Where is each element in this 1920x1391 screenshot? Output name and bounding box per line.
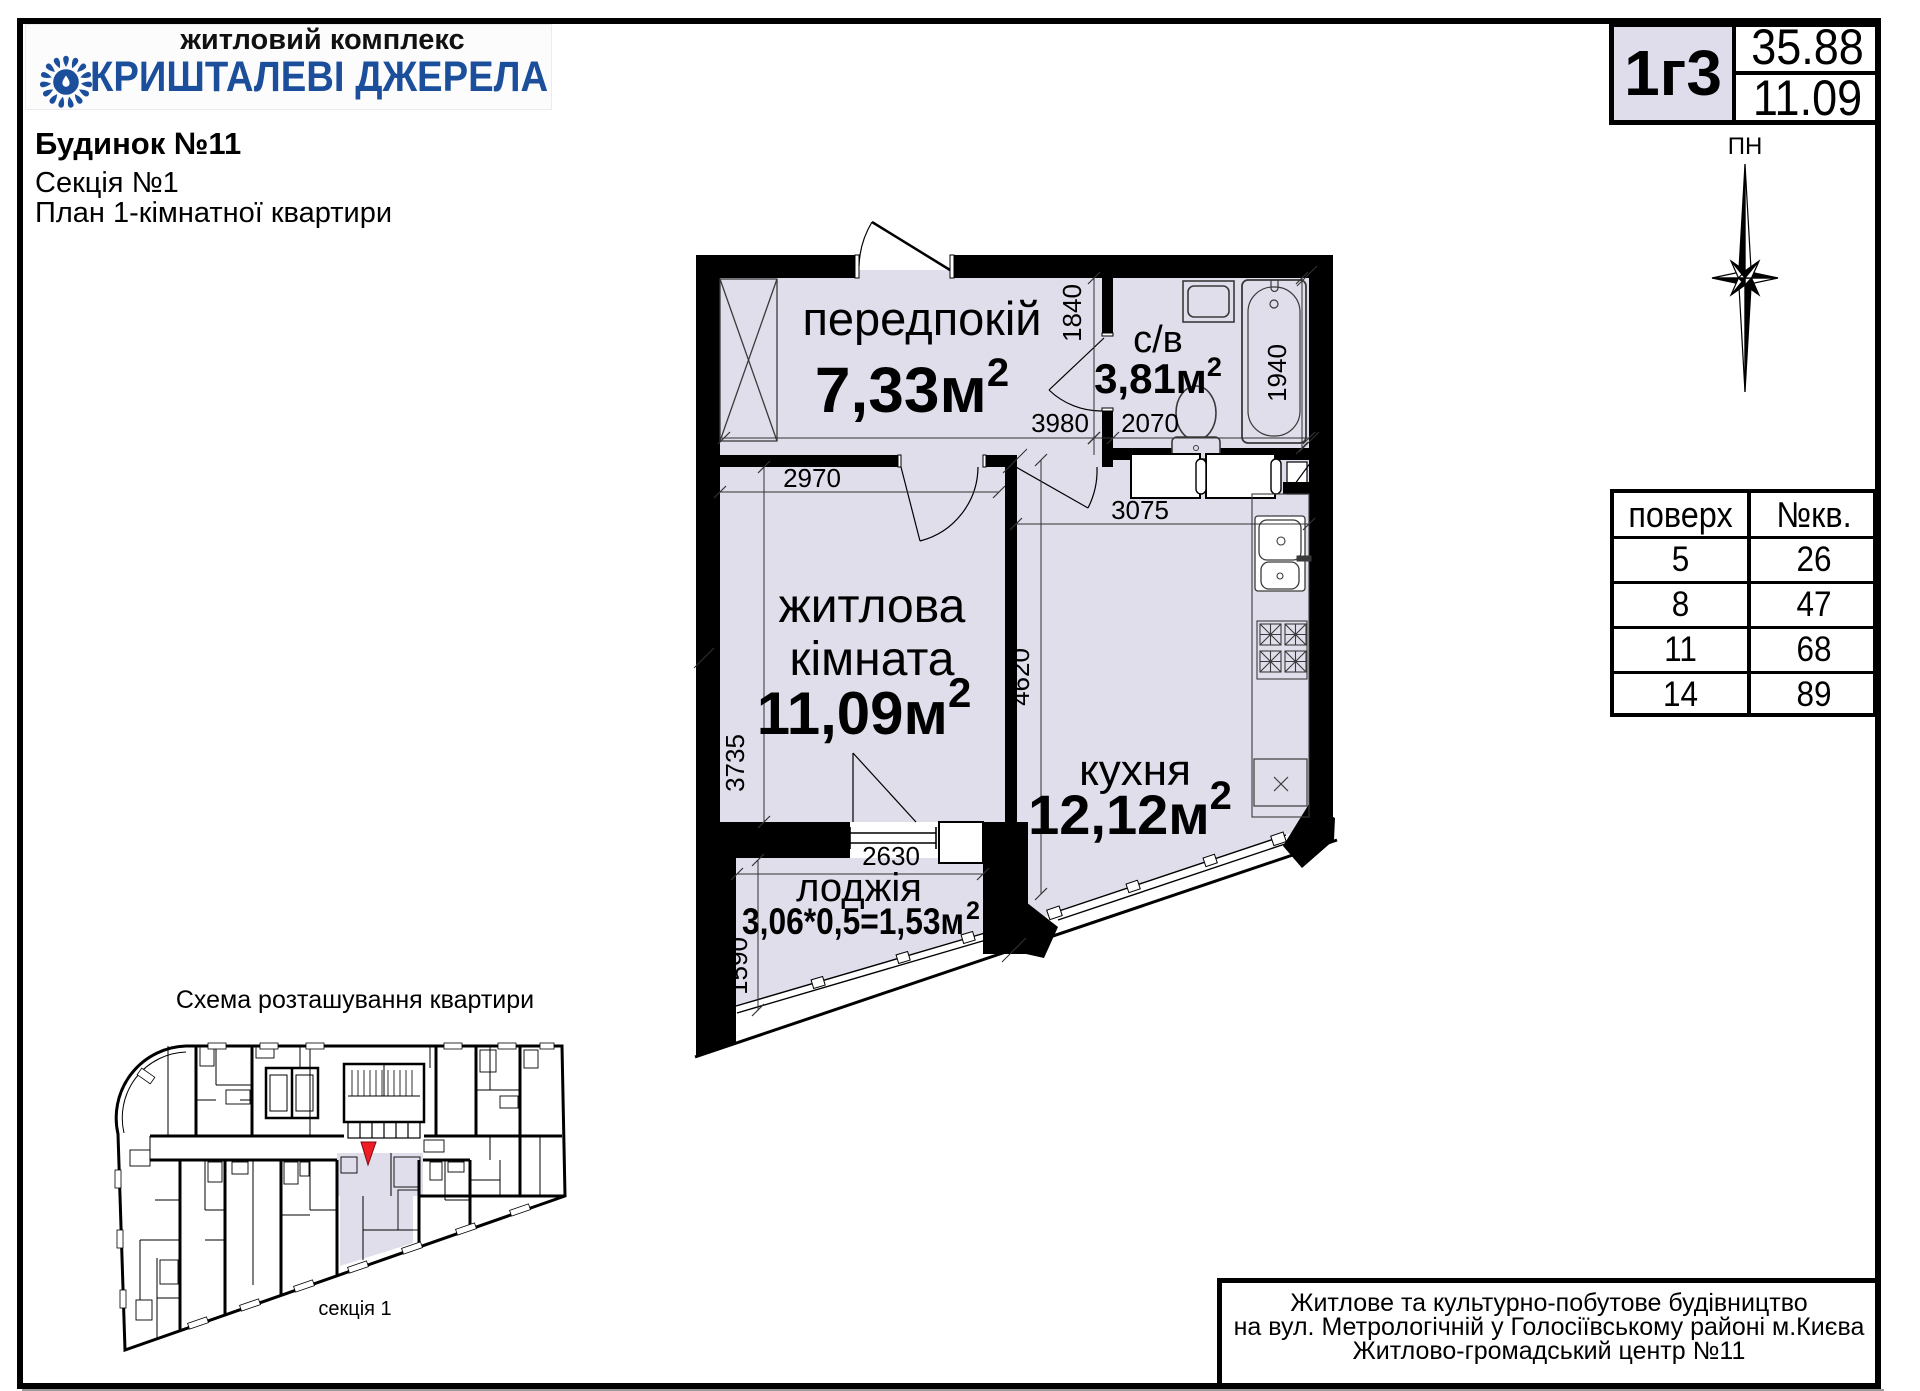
svg-text:2970: 2970 — [783, 463, 841, 493]
svg-text:2: 2 — [966, 897, 980, 925]
svg-text:3075: 3075 — [1111, 495, 1169, 525]
svg-text:11,09м2: 11,09м2 — [757, 669, 972, 747]
svg-text:3735: 3735 — [720, 734, 750, 792]
svg-text:житлова: житлова — [779, 580, 966, 633]
svg-text:1590: 1590 — [723, 937, 753, 995]
svg-text:12,12м2: 12,12м2 — [1028, 774, 1232, 846]
svg-text:4620: 4620 — [1005, 648, 1035, 706]
svg-text:1840: 1840 — [1057, 284, 1087, 342]
svg-text:1940: 1940 — [1262, 344, 1292, 402]
svg-text:2070: 2070 — [1121, 408, 1179, 438]
svg-text:3,06*0,5=1,53м: 3,06*0,5=1,53м — [742, 901, 964, 942]
svg-text:кімната: кімната — [790, 633, 955, 686]
svg-text:7,33м2: 7,33м2 — [815, 351, 1009, 426]
svg-text:3,81м2: 3,81м2 — [1094, 352, 1222, 402]
svg-text:2630: 2630 — [862, 841, 920, 871]
svg-text:3980: 3980 — [1031, 408, 1089, 438]
svg-text:передпокій: передпокій — [802, 292, 1041, 345]
